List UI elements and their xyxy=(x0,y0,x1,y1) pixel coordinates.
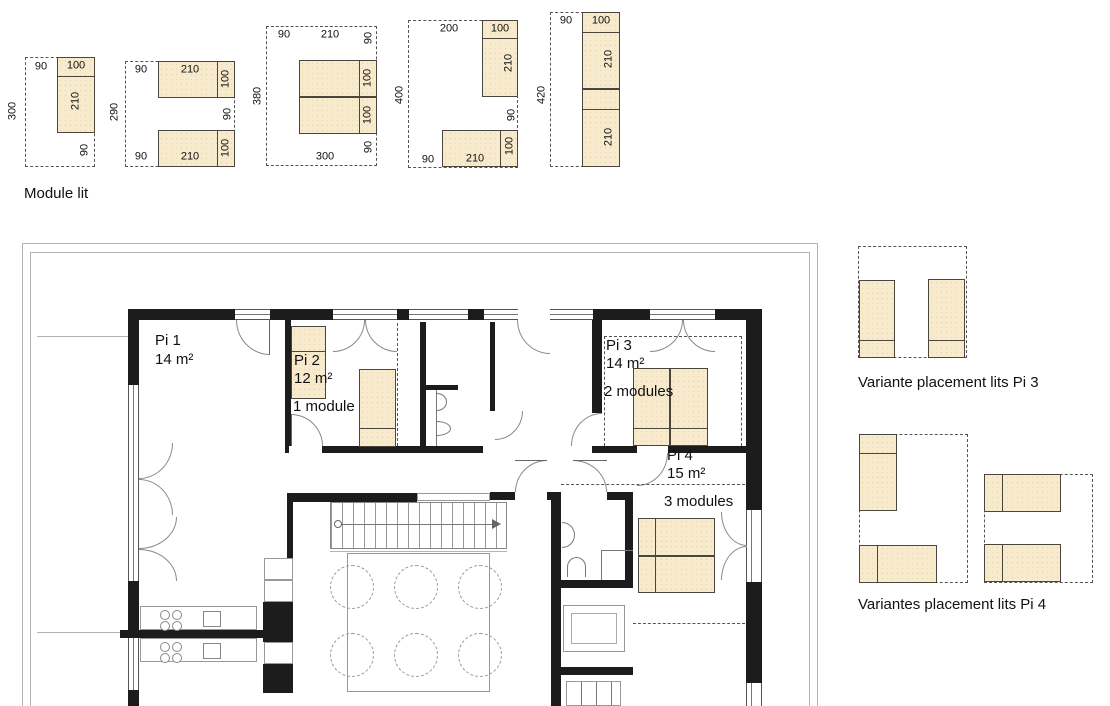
door-leaf xyxy=(573,460,607,461)
dim-label: 380 xyxy=(253,87,264,105)
variant-pi3-caption: Variante placement lits Pi 3 xyxy=(858,375,1039,390)
stove-burner xyxy=(160,621,170,631)
bed-headline xyxy=(633,428,670,429)
dim-label: 90 xyxy=(135,152,147,163)
kitchen-counter xyxy=(140,606,257,630)
dim-label: 90 xyxy=(422,155,434,166)
pi4-name: Pi 4 xyxy=(667,448,693,463)
pi2-bed-right xyxy=(359,369,396,447)
pi1-name: Pi 1 xyxy=(155,333,181,348)
chair xyxy=(458,565,502,609)
door-leaf xyxy=(269,320,270,355)
window xyxy=(333,309,397,320)
bed-headline xyxy=(655,518,656,556)
wall-segment xyxy=(592,320,602,413)
bed-headline xyxy=(859,453,897,454)
pi3-bed-right xyxy=(670,368,708,446)
wall-segment xyxy=(746,582,762,683)
lower-stair-landing xyxy=(566,681,621,706)
kitchen-sink xyxy=(203,643,221,659)
pi4-bed-bottom xyxy=(638,556,715,593)
dim-label: 90 xyxy=(364,141,375,153)
module4-bed-horizontal-headline xyxy=(500,130,501,167)
pi2-name: Pi 2 xyxy=(294,353,320,368)
stove-burner xyxy=(172,642,182,652)
wall-segment xyxy=(551,580,633,588)
wall-segment xyxy=(128,309,235,320)
door-opening xyxy=(518,309,550,320)
wc2-partition xyxy=(601,550,602,580)
wall-segment xyxy=(128,309,139,385)
dim-label: 90 xyxy=(135,65,147,76)
dim-label: 90 xyxy=(364,32,375,44)
pi4-area: 15 m² xyxy=(667,466,705,481)
dim-label: 100 xyxy=(221,70,232,88)
wall-segment xyxy=(287,493,293,558)
pi2-modules: 1 module xyxy=(293,399,355,414)
chair xyxy=(330,633,374,677)
stove-burner xyxy=(160,653,170,663)
module3-bed-top-headline xyxy=(359,60,360,97)
wall-segment xyxy=(592,446,637,453)
pi4-module-zone-top xyxy=(561,484,745,485)
pi4-bed-top xyxy=(638,518,715,556)
french-door xyxy=(128,443,139,515)
dim-label: 210 xyxy=(604,128,615,146)
bed-headline xyxy=(1002,544,1003,582)
variant-pi4-bed-vertical xyxy=(859,434,897,511)
bed-headline xyxy=(877,545,878,583)
variant-pi4-bed-bottom xyxy=(984,544,1061,582)
pi1-area: 14 m² xyxy=(155,352,193,367)
wall-segment xyxy=(288,493,417,502)
variant-pi3-bed-right xyxy=(928,279,965,358)
module2-bed-top-headline xyxy=(217,61,218,98)
window xyxy=(235,309,270,320)
wall-segment xyxy=(426,385,458,390)
wall-segment xyxy=(746,309,762,510)
window xyxy=(746,683,762,706)
wall-segment xyxy=(397,309,409,320)
dim-label: 90 xyxy=(278,30,290,41)
dim-label: 300 xyxy=(8,102,19,120)
pi3-area: 14 m² xyxy=(606,356,644,371)
terrace-line xyxy=(37,632,128,633)
stove-burner xyxy=(160,610,170,620)
dim-label: 400 xyxy=(395,86,406,104)
bed-headline xyxy=(1002,474,1003,512)
cabinet xyxy=(264,642,293,664)
dim-label: 290 xyxy=(110,103,121,121)
french-door xyxy=(746,510,762,582)
kitchen-sink xyxy=(203,611,221,627)
bed-headline xyxy=(859,340,895,341)
window xyxy=(409,309,468,320)
dim-label: 90 xyxy=(560,16,572,27)
wall-segment xyxy=(551,667,633,675)
pi2-area: 12 m² xyxy=(294,371,332,386)
variant-pi4-caption: Variantes placement lits Pi 4 xyxy=(858,597,1046,612)
wall-segment xyxy=(263,664,293,693)
wall-segment xyxy=(285,446,289,453)
stove-burner xyxy=(172,610,182,620)
cabinet xyxy=(264,580,293,602)
window xyxy=(484,309,518,320)
module3-bed-bottom-headline xyxy=(359,97,360,134)
bed-headline xyxy=(928,340,965,341)
appliance-inner xyxy=(571,613,617,644)
module5-bed-bottom-headline xyxy=(582,109,620,110)
window xyxy=(128,637,139,690)
stair-rail-line xyxy=(330,551,507,552)
variant-pi3-bed-left xyxy=(859,280,895,358)
landing-line xyxy=(611,682,612,705)
wall-segment xyxy=(625,492,633,588)
stove-burner xyxy=(172,653,182,663)
stair-arrow-line xyxy=(338,524,494,525)
wall-segment xyxy=(128,690,139,706)
module2-bed-bottom-headline xyxy=(217,130,218,167)
module1-bed-headline xyxy=(57,76,95,77)
pi3-bed-left xyxy=(633,368,670,446)
variant-pi4-bed-horizontal xyxy=(859,545,937,583)
landing-line xyxy=(596,682,597,705)
bed-headline xyxy=(670,428,708,429)
dim-label: 210 xyxy=(181,65,199,76)
variant-pi4-bed-top xyxy=(984,474,1061,512)
dim-label: 100 xyxy=(363,106,374,124)
pi4-modules: 3 modules xyxy=(664,494,733,509)
pi3-modules: 2 modules xyxy=(604,384,673,399)
pi3-name: Pi 3 xyxy=(606,338,632,353)
wc2-partition xyxy=(601,550,633,551)
dim-label: 210 xyxy=(71,92,82,110)
dim-label: 210 xyxy=(321,30,339,41)
stair-arrow-head xyxy=(492,519,501,529)
wc2-toilet xyxy=(567,557,586,577)
bed-headline xyxy=(359,428,396,429)
stair-railing xyxy=(417,493,490,501)
dim-label: 90 xyxy=(223,108,234,120)
floor-plan-drawing: 90 100 210 300 90 90 210 100 290 90 90 2… xyxy=(0,0,1110,706)
kitchen-counter xyxy=(140,638,257,662)
dim-label: 90 xyxy=(507,109,518,121)
wall-segment xyxy=(593,309,650,320)
legend-title: Module lit xyxy=(24,186,88,201)
wall-segment xyxy=(468,309,484,320)
dim-label: 90 xyxy=(80,144,91,156)
window xyxy=(650,309,715,320)
dim-label: 100 xyxy=(221,139,232,157)
dim-label: 300 xyxy=(316,152,334,163)
door-leaf xyxy=(291,414,292,446)
chair xyxy=(394,565,438,609)
window xyxy=(128,385,139,443)
wall-segment xyxy=(128,581,139,637)
stair-arrow-start xyxy=(334,520,342,528)
french-door xyxy=(128,515,139,581)
staircase xyxy=(330,502,507,549)
dim-label: 210 xyxy=(604,50,615,68)
dim-label: 420 xyxy=(537,86,548,104)
chair xyxy=(394,633,438,677)
wall-segment xyxy=(490,492,515,500)
dim-label: 100 xyxy=(592,16,610,27)
chair xyxy=(330,565,374,609)
bed-headline xyxy=(655,556,656,593)
dim-label: 100 xyxy=(67,61,85,72)
wall-segment xyxy=(263,602,293,642)
cabinet xyxy=(264,558,293,580)
module5-bed-top-headline xyxy=(582,32,620,33)
wall-segment xyxy=(270,309,333,320)
pi2-dashed-line xyxy=(397,323,398,446)
wall-segment xyxy=(420,322,426,446)
dim-label: 200 xyxy=(440,24,458,35)
pi4-module-zone-bottom xyxy=(633,623,745,624)
window xyxy=(550,309,593,320)
dim-label: 210 xyxy=(504,54,515,72)
wall-segment xyxy=(490,322,495,411)
wall-segment xyxy=(322,446,483,453)
dim-label: 90 xyxy=(35,62,47,73)
kitchen-divider-wall xyxy=(120,630,264,638)
landing-line xyxy=(581,682,582,705)
dim-label: 210 xyxy=(181,152,199,163)
dim-label: 100 xyxy=(505,137,516,155)
dim-label: 210 xyxy=(466,154,484,165)
dim-label: 100 xyxy=(363,69,374,87)
stove-burner xyxy=(172,621,182,631)
module4-bed-vertical-headline xyxy=(482,38,518,39)
door-leaf xyxy=(515,460,547,461)
stove-burner xyxy=(160,642,170,652)
chair xyxy=(458,633,502,677)
dim-label: 100 xyxy=(491,24,509,35)
terrace-line xyxy=(37,336,128,337)
